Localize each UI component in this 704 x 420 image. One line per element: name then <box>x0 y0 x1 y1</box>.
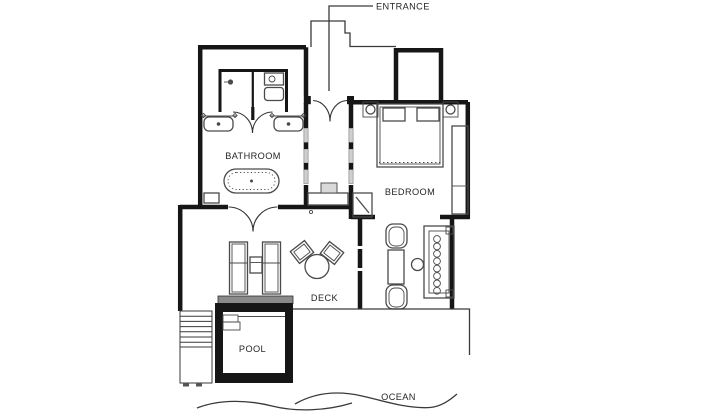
divider-notch <box>358 268 363 271</box>
bedroom: BEDROOM <box>353 102 468 217</box>
wave-line-left <box>197 401 352 409</box>
sun-lounger-right <box>263 242 281 294</box>
lounge-table <box>388 250 404 284</box>
sofa-cushions <box>434 236 441 295</box>
vanity-sink-right <box>274 117 303 131</box>
entrance-door-jamb <box>304 96 311 104</box>
bathroom-deck-double-door <box>229 207 278 232</box>
beach-stairs <box>180 311 212 387</box>
door-stop <box>309 210 312 213</box>
pool-coping <box>218 296 293 304</box>
pool-water <box>223 312 285 373</box>
entrance-door-jamb <box>347 96 354 104</box>
bedroom-bump-walls <box>396 50 441 102</box>
deck-label: DECK <box>311 293 339 303</box>
entrance-double-door <box>313 101 347 122</box>
toilet <box>265 73 284 101</box>
deck-chair-left <box>290 241 313 264</box>
bed <box>377 104 443 167</box>
bathtub <box>224 169 279 193</box>
armchair-top <box>386 224 407 248</box>
wave-line-right <box>295 393 457 408</box>
floorplan-svg: ENTRANCE <box>0 0 704 420</box>
pillow <box>417 108 439 121</box>
pool: POOL <box>215 296 293 383</box>
corridor-windows <box>304 129 354 184</box>
side-table <box>412 259 424 271</box>
landing-foot <box>196 383 202 387</box>
pool-label: POOL <box>239 344 266 354</box>
floor-plan: ENTRANCE <box>0 0 704 420</box>
entrance-label: ENTRANCE <box>376 2 430 12</box>
pillow <box>383 108 405 121</box>
divider-notch <box>358 246 363 249</box>
bathroom-stool <box>204 193 219 203</box>
bathroom-label: BATHROOM <box>225 151 281 161</box>
ocean-label: OCEAN <box>381 392 416 402</box>
sun-lounger-left <box>230 242 248 294</box>
daybed-sofa <box>424 226 454 298</box>
stair-landing <box>180 347 212 383</box>
console-table <box>308 193 348 205</box>
bedroom-label: BEDROOM <box>385 187 435 197</box>
doors <box>229 101 348 232</box>
ocean: OCEAN <box>197 392 457 410</box>
armchair-bottom <box>386 285 407 309</box>
lamp-icon <box>366 105 375 114</box>
deck-boundary-line <box>293 309 470 355</box>
walls <box>180 47 470 311</box>
landing-foot <box>183 383 189 387</box>
deck: DECK <box>230 241 344 303</box>
bathroom: BATHROOM <box>201 71 305 204</box>
console-stool <box>321 183 337 193</box>
deck-chair-right <box>320 242 343 265</box>
lamp-icon <box>446 105 455 114</box>
lounge <box>386 224 454 309</box>
entrance-porch-outline <box>311 21 396 47</box>
corridor-walls <box>306 103 351 219</box>
entrance-leader-line <box>329 6 373 91</box>
vanity-sink-left <box>204 117 233 131</box>
tv-cabinet <box>353 193 372 217</box>
lounger-side-table <box>250 257 262 273</box>
